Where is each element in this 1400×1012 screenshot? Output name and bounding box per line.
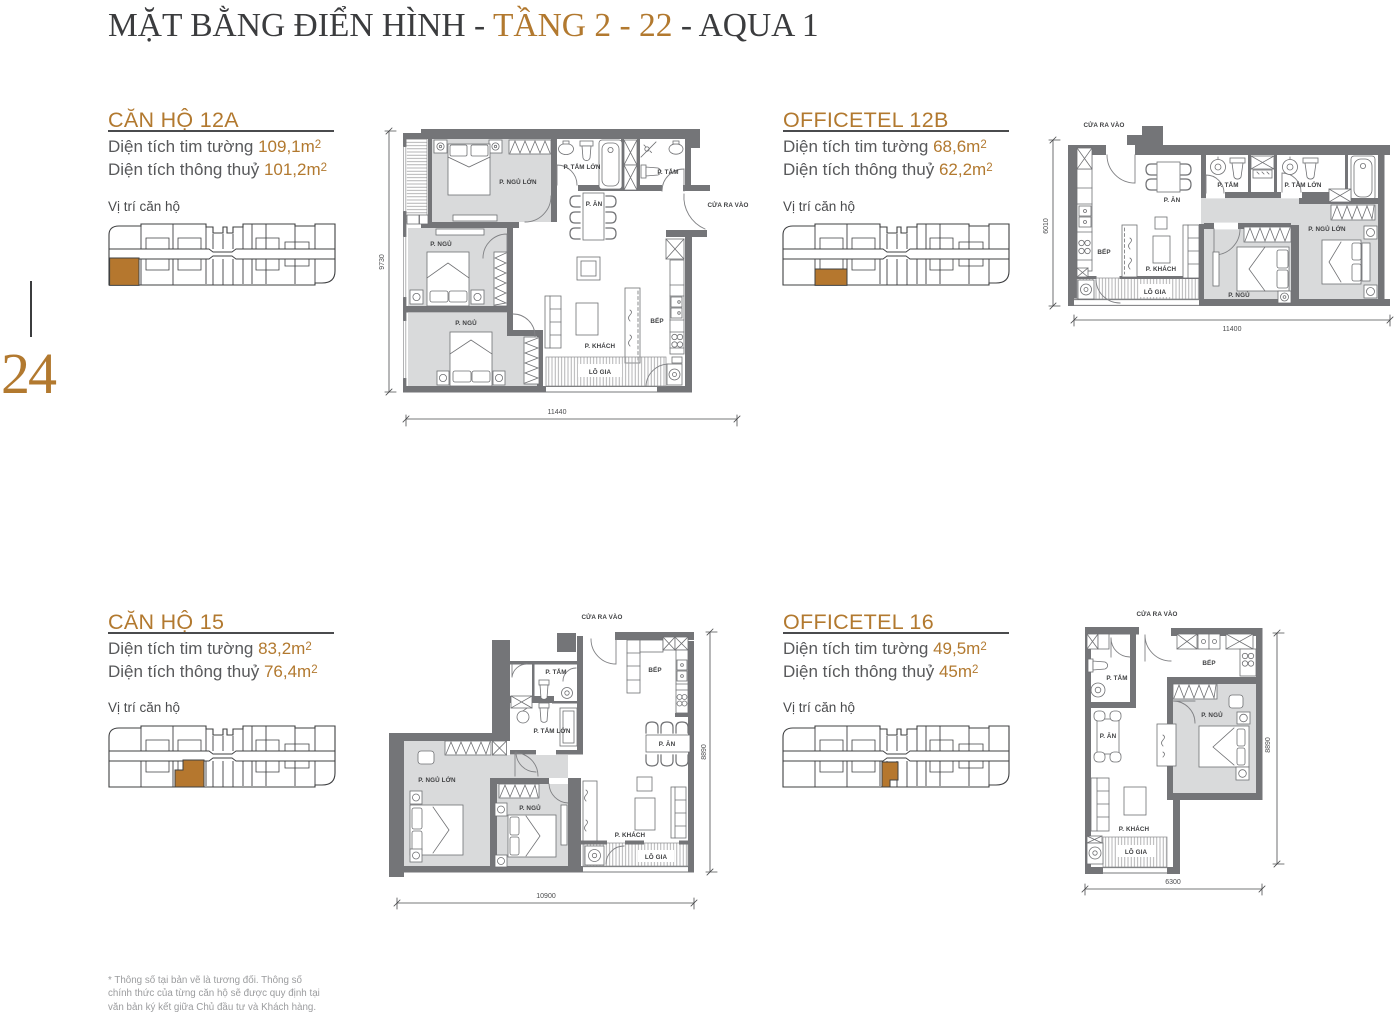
svg-text:P. NGỦ LỚN: P. NGỦ LỚN <box>1308 224 1346 233</box>
svg-text:CỬA RA VÀO: CỬA RA VÀO <box>707 200 748 209</box>
svg-text:LÔ GIA: LÔ GIA <box>589 367 612 376</box>
svg-text:P. TẮM: P. TẮM <box>545 667 566 676</box>
svg-text:11400: 11400 <box>1223 326 1242 333</box>
svg-text:P. TẮM: P. TẮM <box>657 167 678 176</box>
svg-text:8890: 8890 <box>1265 737 1272 753</box>
svg-text:P. NGỦ LỚN: P. NGỦ LỚN <box>418 775 456 784</box>
svg-text:LÔ GIA: LÔ GIA <box>645 852 668 861</box>
svg-text:P. KHÁCH: P. KHÁCH <box>615 830 646 839</box>
svg-text:P. NGỦ: P. NGỦ <box>430 239 452 248</box>
svg-text:BẾP: BẾP <box>648 664 661 674</box>
svg-text:8890: 8890 <box>701 744 708 760</box>
svg-text:BẾP: BẾP <box>650 315 663 325</box>
svg-text:P. NGỦ: P. NGỦ <box>519 803 541 812</box>
svg-text:CỬA RA VÀO: CỬA RA VÀO <box>1083 120 1124 129</box>
svg-text:P. KHÁCH: P. KHÁCH <box>1146 264 1177 273</box>
svg-text:P. TẮM LỚN: P. TẮM LỚN <box>533 726 570 735</box>
svg-text:P. KHÁCH: P. KHÁCH <box>1119 824 1150 833</box>
svg-text:P. NGỦ: P. NGỦ <box>1201 710 1223 719</box>
svg-text:P. TẮM LỚN: P. TẮM LỚN <box>1284 180 1321 189</box>
svg-text:P. ĂN: P. ĂN <box>659 739 676 748</box>
svg-text:P. NGỦ: P. NGỦ <box>1228 290 1250 299</box>
svg-text:P. NGỦ: P. NGỦ <box>455 318 477 327</box>
svg-text:BẾP: BẾP <box>1202 657 1215 667</box>
svg-text:P. TẮM: P. TẮM <box>1106 673 1127 682</box>
svg-text:6300: 6300 <box>1165 879 1181 886</box>
svg-text:LÔ GIA: LÔ GIA <box>1125 847 1148 856</box>
svg-text:6010: 6010 <box>1043 218 1050 234</box>
svg-text:P. ĂN: P. ĂN <box>1100 731 1117 740</box>
svg-text:9730: 9730 <box>379 254 386 270</box>
svg-text:11440: 11440 <box>548 409 567 416</box>
svg-text:LÔ GIA: LÔ GIA <box>1144 287 1167 296</box>
svg-text:P. TẮM LỚN: P. TẮM LỚN <box>563 162 600 171</box>
svg-text:10900: 10900 <box>536 893 556 900</box>
svg-text:P. KHÁCH: P. KHÁCH <box>585 341 616 350</box>
svg-text:P. ĂN: P. ĂN <box>586 199 603 208</box>
svg-text:P. TẮM: P. TẮM <box>1217 180 1238 189</box>
svg-text:CỬA RA VÀO: CỬA RA VÀO <box>1136 609 1177 618</box>
svg-text:P. NGỦ LỚN: P. NGỦ LỚN <box>499 177 537 186</box>
svg-text:P. ĂN: P. ĂN <box>1164 195 1181 204</box>
svg-text:CỬA RA VÀO: CỬA RA VÀO <box>581 612 622 621</box>
svg-text:BẾP: BẾP <box>1097 246 1110 256</box>
